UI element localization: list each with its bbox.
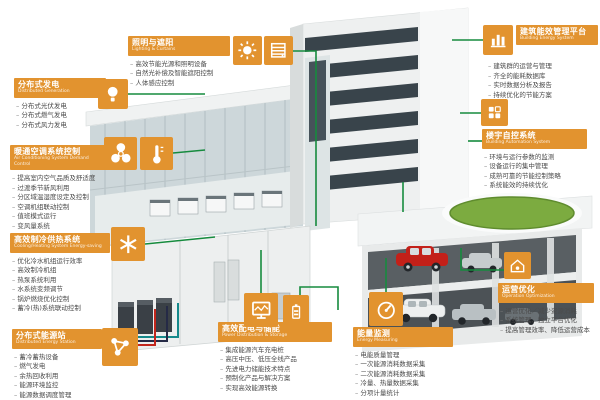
panel-items: 环境与运行参数的监测 设备运行的集中管理 成熟可靠的节能控制策略 系统能效的持续… [482, 153, 587, 191]
panel-item: 分布式光伏发电 [16, 102, 106, 112]
meter-icon [369, 292, 403, 326]
panel-item: 值班模式运行 [12, 212, 110, 222]
panel-header: 分布式发电 Distributed Generation [14, 78, 106, 98]
dashboard-grid-icon [481, 99, 508, 126]
panel-item: 提高室内空气品质及舒适度 [12, 174, 110, 184]
panel-energy-station: 分布式能源站 Distributed Energy Station 蓄冷蓄热设备… [12, 329, 102, 400]
panel-item: 人体感应控制 [130, 79, 230, 89]
panel-header: 分布式能源站 Distributed Energy Station [12, 329, 102, 349]
green-roof-lawn [450, 197, 574, 229]
panel-items: 高效节能光源和照明设备 自然光补偿及智能遮阳控制 人体感应控制 [128, 60, 230, 89]
panel-power-storage: 高效配电与储能 Power Distribution & Storage 集成能… [218, 322, 332, 393]
panel-item: 预制化产品与解决方案 [220, 374, 332, 384]
bulb-icon [98, 79, 128, 109]
panel-item: 设备运行的集中管理 [484, 162, 587, 172]
panel-item: 分布式风力发电 [16, 121, 106, 131]
panel-item: 燃气发电 [14, 362, 102, 372]
building-chart-icon [483, 25, 513, 55]
network-icon [102, 328, 138, 366]
panel-item: 运营优化／减少资源消耗 [500, 307, 594, 317]
panel-item: 锅炉燃烧优化控制 [12, 295, 110, 305]
panel-item: 高效制冷机组 [12, 266, 110, 276]
panel-item: 自然光补偿及智能遮阳控制 [130, 69, 230, 79]
panel-subtitle: Air Conditioning System Demand Control [14, 156, 106, 167]
panel-subtitle: Distributed Generation [18, 89, 102, 95]
panel-item: 过渡季节新风利用 [12, 184, 110, 194]
panel-title: 分布式能源站 [16, 331, 98, 340]
panel-item: 电能质量管理 [355, 351, 453, 361]
panel-item: 先进电力储能技术特点 [220, 365, 332, 375]
panel-subtitle: Lighting & Curtains [132, 47, 226, 53]
panel-header: 照明与遮阳 Lighting & Curtains [128, 36, 230, 56]
panel-item: 分布式燃气发电 [16, 111, 106, 121]
panel-item: 提高管理效率、降低运营成本 [500, 326, 594, 336]
panel-items: 优化冷水机组运行效率 高效制冷机组 热泵系统利用 水系统变频调节 锅炉燃烧优化控… [10, 257, 110, 314]
panel-item: 余热回收利用 [14, 372, 102, 382]
panel-item: 优化冷水机组运行效率 [12, 257, 110, 267]
monitor-icon [244, 293, 278, 327]
panel-lighting-shading: 照明与遮阳 Lighting & Curtains 高效节能光源和照明设备 自然… [128, 36, 230, 88]
house-gauge-icon [504, 252, 531, 279]
panel-item: 实时数据分析及报告 [488, 81, 600, 91]
panel-item: 热泵系统利用 [12, 276, 110, 286]
panel-item: 集成能源汽车充电桩 [220, 346, 332, 356]
panel-title: 照明与遮阳 [132, 38, 226, 47]
panel-subtitle: Building Automation System [486, 140, 583, 146]
panel-item: 能源环境监控 [14, 381, 102, 391]
panel-item: 能源数据调度管理 [14, 391, 102, 400]
panel-items: 提高室内空气品质及舒适度 过渡季节新风利用 分区域温湿度设定及控制 空调机组联动… [10, 174, 110, 231]
panel-title: 能量监测 [357, 329, 449, 338]
panel-subtitle: Operation Optimization [502, 294, 590, 300]
panel-item: 冷量、热量数据采集 [355, 379, 453, 389]
panel-item: 齐全的能耗数据库 [488, 72, 600, 82]
panel-header: 运营优化 Operation Optimization [498, 283, 594, 303]
panel-building-automation: 楼宇自控系统 Building Automation System 环境与运行参… [482, 129, 587, 191]
panel-item: 系统能效的持续优化 [484, 181, 587, 191]
panel-item: 二次能源消耗数据采集 [355, 370, 453, 380]
sun-icon [233, 36, 262, 65]
panel-subtitle: Power Distribution & Storage [222, 333, 328, 339]
panel-item: 变风量系统 [12, 222, 110, 232]
panel-title: 运营优化 [502, 285, 590, 294]
panel-header: 高效制冷供热系统 Cooling/Heating System Energy-s… [10, 233, 110, 253]
panel-cooling-heating: 高效制冷供热系统 Cooling/Heating System Energy-s… [10, 233, 110, 314]
panel-subtitle: Energy Measuring [357, 338, 449, 344]
panel-item: 空调机组联动控制 [12, 203, 110, 213]
panel-hvac-control: 暖通空调系统控制 Air Conditioning System Demand … [10, 145, 110, 231]
panel-operation-optimization: 运营优化 Operation Optimization 运营优化／减少资源消耗 … [498, 283, 594, 335]
panel-subtitle: Building Energy System [520, 36, 594, 42]
fan-icon [104, 137, 137, 170]
panel-item: 建筑群的运营与管理 [488, 62, 600, 72]
infographic-canvas: 分布式发电 Distributed Generation 分布式光伏发电 分布式… [0, 0, 600, 400]
panel-header: 暖通空调系统控制 Air Conditioning System Demand … [10, 145, 110, 170]
panel-item: 高效节能光源和照明设备 [130, 60, 230, 70]
panel-energy-monitoring: 能量监测 Energy Measuring 电能质量管理 一次能源消耗数据采集 … [353, 327, 453, 398]
snowflake-icon [111, 227, 145, 261]
panel-item: 成熟可靠的节能控制策略 [484, 172, 587, 182]
panel-item: 分区域温湿度设定及控制 [12, 193, 110, 203]
panel-items: 分布式光伏发电 分布式燃气发电 分布式风力发电 [14, 102, 106, 131]
panel-subtitle: Cooling/Heating System Energy-saving [14, 244, 106, 250]
battery-icon [283, 295, 309, 327]
panel-item: 蓄冷蓄热设备 [14, 353, 102, 363]
panel-distributed-generation: 分布式发电 Distributed Generation 分布式光伏发电 分布式… [14, 78, 106, 130]
panel-title: 高效制冷供热系统 [14, 235, 106, 244]
panel-item: 高压中压、低压全线产品 [220, 355, 332, 365]
panel-item: 蓄冷(热)系统联动控制 [12, 304, 110, 314]
panel-item: 分项计量统计 [355, 389, 453, 399]
blinds-icon [264, 36, 293, 65]
panel-energy-platform-items: 建筑群的运营与管理 齐全的能耗数据库 实时数据分析及报告 持续优化的节能方案 [486, 62, 600, 100]
panel-title: 楼宇自控系统 [486, 131, 583, 140]
panel-items: 电能质量管理 一次能源消耗数据采集 二次能源消耗数据采集 冷量、热量数据采集 分… [353, 351, 453, 399]
panel-subtitle: Distributed Energy Station [16, 340, 98, 346]
panel-items: 蓄冷蓄热设备 燃气发电 余热回收利用 能源环境监控 能源数据调度管理 [12, 353, 102, 400]
panel-item: 环境与运行参数的监测 [484, 153, 587, 163]
panel-header: 楼宇自控系统 Building Automation System [482, 129, 587, 149]
panel-energy-platform: 建筑能效管理平台 Building Energy System [516, 25, 598, 45]
panel-items: 集成能源汽车充电桩 高压中压、低压全线产品 先进电力储能技术特点 预制化产品与解… [218, 346, 332, 394]
panel-title: 分布式发电 [18, 80, 102, 89]
panel-item: 实现高效能源转换 [220, 384, 332, 394]
panel-item: 系统管理、独立平台优化 [500, 316, 594, 326]
panel-item: 水系统变频调节 [12, 285, 110, 295]
panel-items: 运营优化／减少资源消耗 系统管理、独立平台优化 提高管理效率、降低运营成本 [498, 307, 594, 336]
panel-item: 一次能源消耗数据采集 [355, 360, 453, 370]
panel-title: 暖通空调系统控制 [14, 147, 106, 156]
panel-header: 能量监测 Energy Measuring [353, 327, 453, 347]
panel-title: 建筑能效管理平台 [520, 27, 594, 36]
thermometer-icon [140, 137, 173, 170]
panel-header: 建筑能效管理平台 Building Energy System [516, 25, 598, 45]
